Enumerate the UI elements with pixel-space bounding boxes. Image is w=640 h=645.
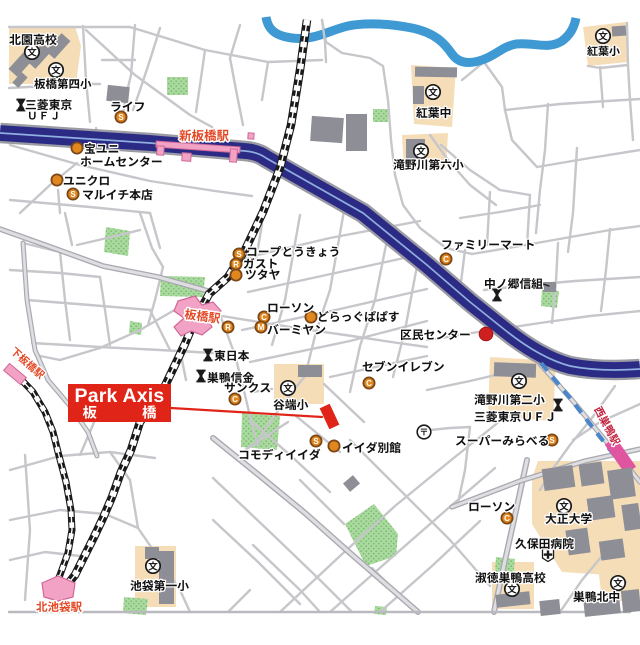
svg-text:C: C xyxy=(261,313,267,322)
svg-text:C: C xyxy=(504,514,510,523)
svg-text:Park Axis: Park Axis xyxy=(75,385,165,407)
svg-text:S: S xyxy=(236,250,242,259)
svg-text:S: S xyxy=(118,113,124,122)
svg-text:C: C xyxy=(232,395,238,404)
svg-text:S: S xyxy=(313,437,319,446)
svg-text:M: M xyxy=(258,323,265,332)
svg-text:S: S xyxy=(549,436,555,445)
svg-text:R: R xyxy=(225,323,231,332)
svg-text:R: R xyxy=(233,260,239,269)
svg-text:C: C xyxy=(443,255,449,264)
svg-text:C: C xyxy=(366,379,372,388)
svg-text:S: S xyxy=(70,190,76,199)
